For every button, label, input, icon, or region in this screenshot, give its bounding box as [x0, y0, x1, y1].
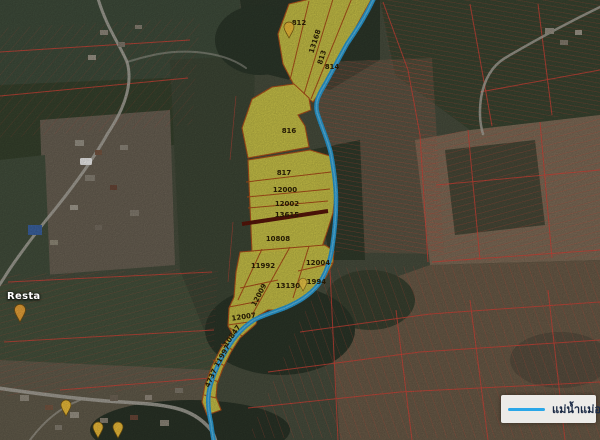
river-legend-label: แม่น้ำแม่ออน	[552, 404, 600, 415]
place-label-resta: Resta	[7, 291, 40, 302]
river-legend: แม่น้ำแม่ออน	[501, 395, 596, 423]
river-line-swatch	[508, 408, 545, 411]
noise-overlay	[0, 0, 600, 440]
satellite-map[interactable]: 812 13168 813 814 816 817 12000 12002 13…	[0, 0, 600, 440]
map-viewport[interactable]: 812 13168 813 814 816 817 12000 12002 13…	[0, 0, 600, 440]
